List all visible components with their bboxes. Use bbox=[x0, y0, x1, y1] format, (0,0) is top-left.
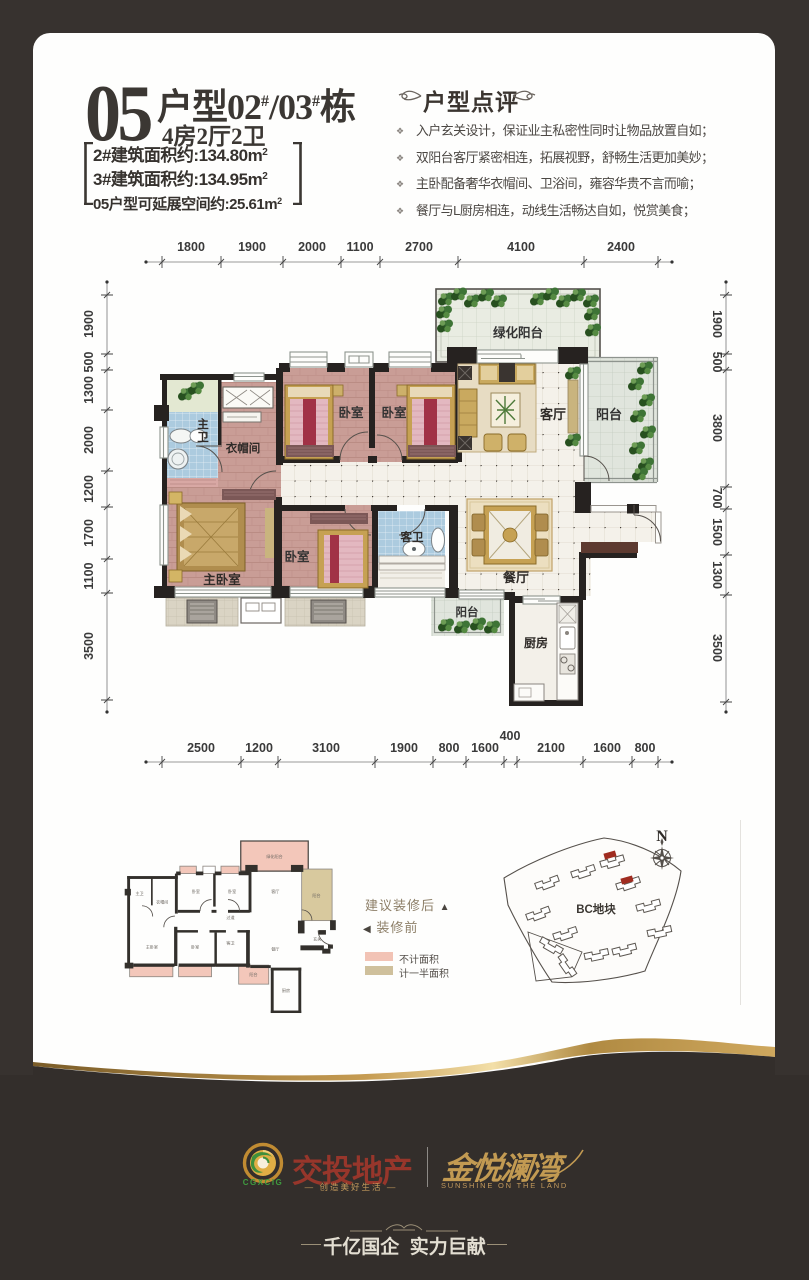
svg-text:客卫: 客卫 bbox=[226, 940, 234, 946]
svg-text:绿化阳台: 绿化阳台 bbox=[493, 325, 543, 340]
svg-text:卧室: 卧室 bbox=[191, 944, 199, 950]
svg-text:客卫: 客卫 bbox=[400, 530, 424, 544]
svg-text:1600: 1600 bbox=[593, 741, 621, 755]
svg-text:衣帽间: 衣帽间 bbox=[156, 898, 168, 904]
svg-text:餐厅: 餐厅 bbox=[502, 570, 529, 585]
svg-text:2400: 2400 bbox=[607, 240, 635, 254]
svg-text:客厅: 客厅 bbox=[540, 407, 566, 422]
svg-text:1900: 1900 bbox=[390, 741, 418, 755]
svg-text:1300: 1300 bbox=[710, 561, 724, 589]
svg-text:2100: 2100 bbox=[537, 741, 565, 755]
svg-text:1900: 1900 bbox=[82, 310, 96, 338]
svg-text:1900: 1900 bbox=[710, 310, 724, 338]
svg-text:3100: 3100 bbox=[312, 741, 340, 755]
svg-text:1800: 1800 bbox=[177, 240, 205, 254]
svg-text:衣帽间: 衣帽间 bbox=[226, 441, 261, 455]
svg-text:2700: 2700 bbox=[405, 240, 433, 254]
svg-text:400: 400 bbox=[500, 729, 521, 743]
svg-text:800: 800 bbox=[635, 741, 656, 755]
svg-text:阳台: 阳台 bbox=[249, 971, 257, 977]
svg-text:1900: 1900 bbox=[238, 240, 266, 254]
svg-text:餐厅: 餐厅 bbox=[271, 946, 279, 952]
svg-text:2000: 2000 bbox=[298, 240, 326, 254]
svg-text:阳台: 阳台 bbox=[596, 407, 622, 422]
svg-text:卧室: 卧室 bbox=[192, 888, 200, 894]
svg-text:客厅: 客厅 bbox=[271, 888, 279, 894]
svg-text:1600: 1600 bbox=[471, 741, 499, 755]
svg-text:过道: 过道 bbox=[226, 914, 234, 920]
svg-text:主卫: 主卫 bbox=[135, 890, 143, 896]
svg-text:卧室: 卧室 bbox=[338, 405, 364, 420]
svg-text:1100: 1100 bbox=[82, 562, 96, 589]
svg-text:1200: 1200 bbox=[245, 741, 273, 755]
svg-text:卧室: 卧室 bbox=[228, 888, 236, 894]
svg-text:阳台: 阳台 bbox=[456, 605, 479, 619]
svg-text:BC地块: BC地块 bbox=[576, 902, 616, 916]
svg-text:2000: 2000 bbox=[82, 426, 96, 454]
svg-text:800: 800 bbox=[439, 741, 460, 755]
svg-text:2500: 2500 bbox=[187, 741, 215, 755]
svg-text:1700: 1700 bbox=[82, 519, 96, 547]
svg-text:绿化阳台: 绿化阳台 bbox=[266, 853, 282, 859]
svg-text:3500: 3500 bbox=[710, 634, 724, 662]
svg-text:3800: 3800 bbox=[710, 414, 724, 442]
svg-text:1300: 1300 bbox=[82, 376, 96, 404]
svg-text:1500: 1500 bbox=[710, 518, 724, 546]
svg-text:厨房: 厨房 bbox=[524, 635, 548, 650]
svg-text:主: 主 bbox=[197, 417, 209, 431]
svg-text:1100: 1100 bbox=[346, 240, 373, 254]
svg-text:阳台: 阳台 bbox=[312, 892, 320, 898]
svg-text:3500: 3500 bbox=[82, 632, 96, 660]
svg-text:卧室: 卧室 bbox=[284, 549, 310, 564]
svg-text:500: 500 bbox=[82, 352, 96, 373]
svg-text:主卧室: 主卧室 bbox=[146, 944, 158, 950]
svg-text:卧室: 卧室 bbox=[381, 405, 407, 420]
svg-text:主卧室: 主卧室 bbox=[203, 572, 241, 587]
svg-text:1200: 1200 bbox=[82, 475, 96, 503]
svg-text:4100: 4100 bbox=[507, 240, 535, 254]
svg-text:700: 700 bbox=[710, 488, 724, 509]
svg-text:卫: 卫 bbox=[197, 431, 209, 444]
svg-text:500: 500 bbox=[710, 352, 724, 373]
svg-text:厨房: 厨房 bbox=[282, 987, 290, 993]
svg-text:玄关: 玄关 bbox=[313, 935, 321, 941]
